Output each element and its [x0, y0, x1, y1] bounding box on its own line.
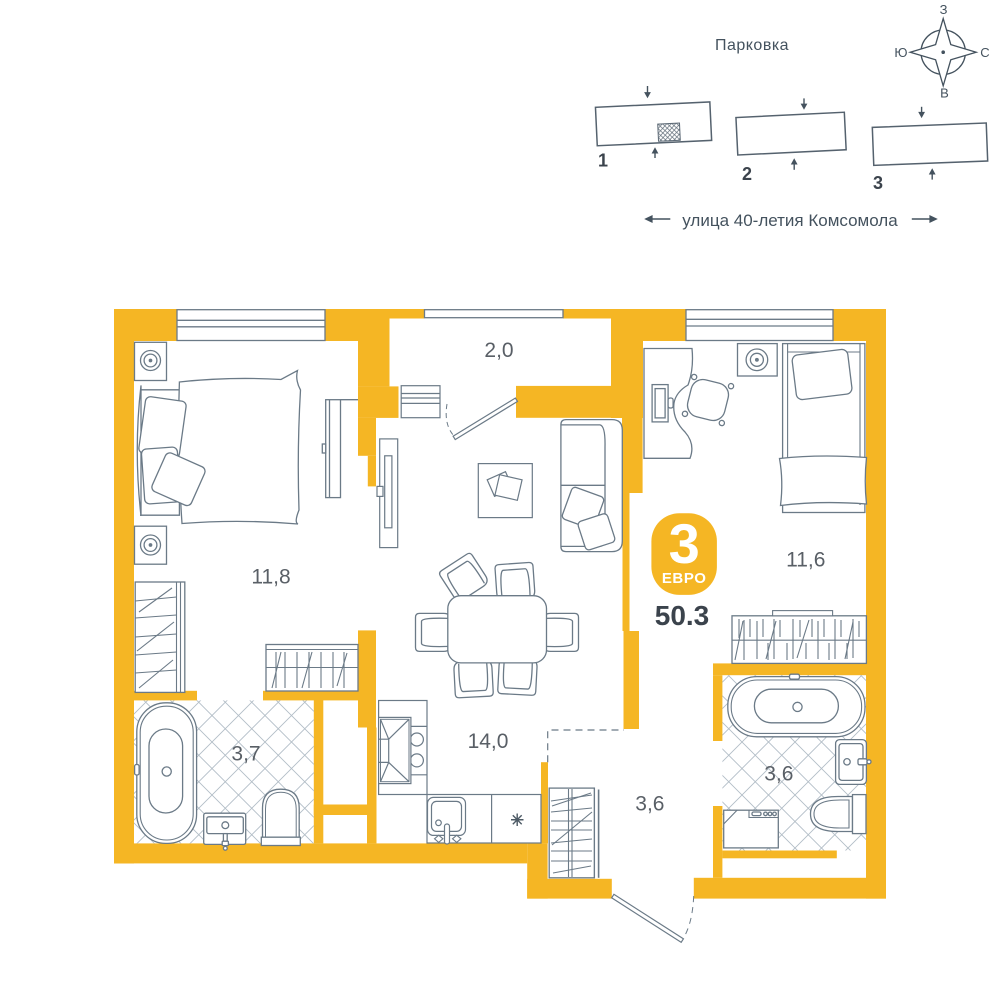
- svg-text:3,7: 3,7: [231, 743, 260, 766]
- svg-text:11,6: 11,6: [786, 549, 825, 572]
- svg-text:3,6: 3,6: [764, 763, 793, 786]
- svg-text:3: 3: [873, 173, 883, 193]
- svg-text:1: 1: [598, 151, 608, 171]
- svg-text:50.3: 50.3: [655, 600, 710, 631]
- svg-text:В: В: [940, 86, 949, 101]
- svg-text:2: 2: [742, 164, 752, 184]
- svg-text:С: С: [980, 45, 989, 60]
- svg-text:3,6: 3,6: [635, 793, 664, 816]
- svg-text:Парковка: Парковка: [715, 37, 789, 54]
- svg-text:14,0: 14,0: [468, 730, 509, 753]
- svg-text:3: 3: [669, 512, 700, 575]
- svg-text:З: З: [940, 2, 948, 17]
- svg-text:Ю: Ю: [894, 45, 907, 60]
- svg-text:11,8: 11,8: [251, 566, 290, 589]
- svg-text:улица 40-летия Комсомола: улица 40-летия Комсомола: [682, 211, 898, 230]
- svg-text:ЕВРО: ЕВРО: [662, 570, 707, 587]
- svg-text:2,0: 2,0: [484, 339, 513, 362]
